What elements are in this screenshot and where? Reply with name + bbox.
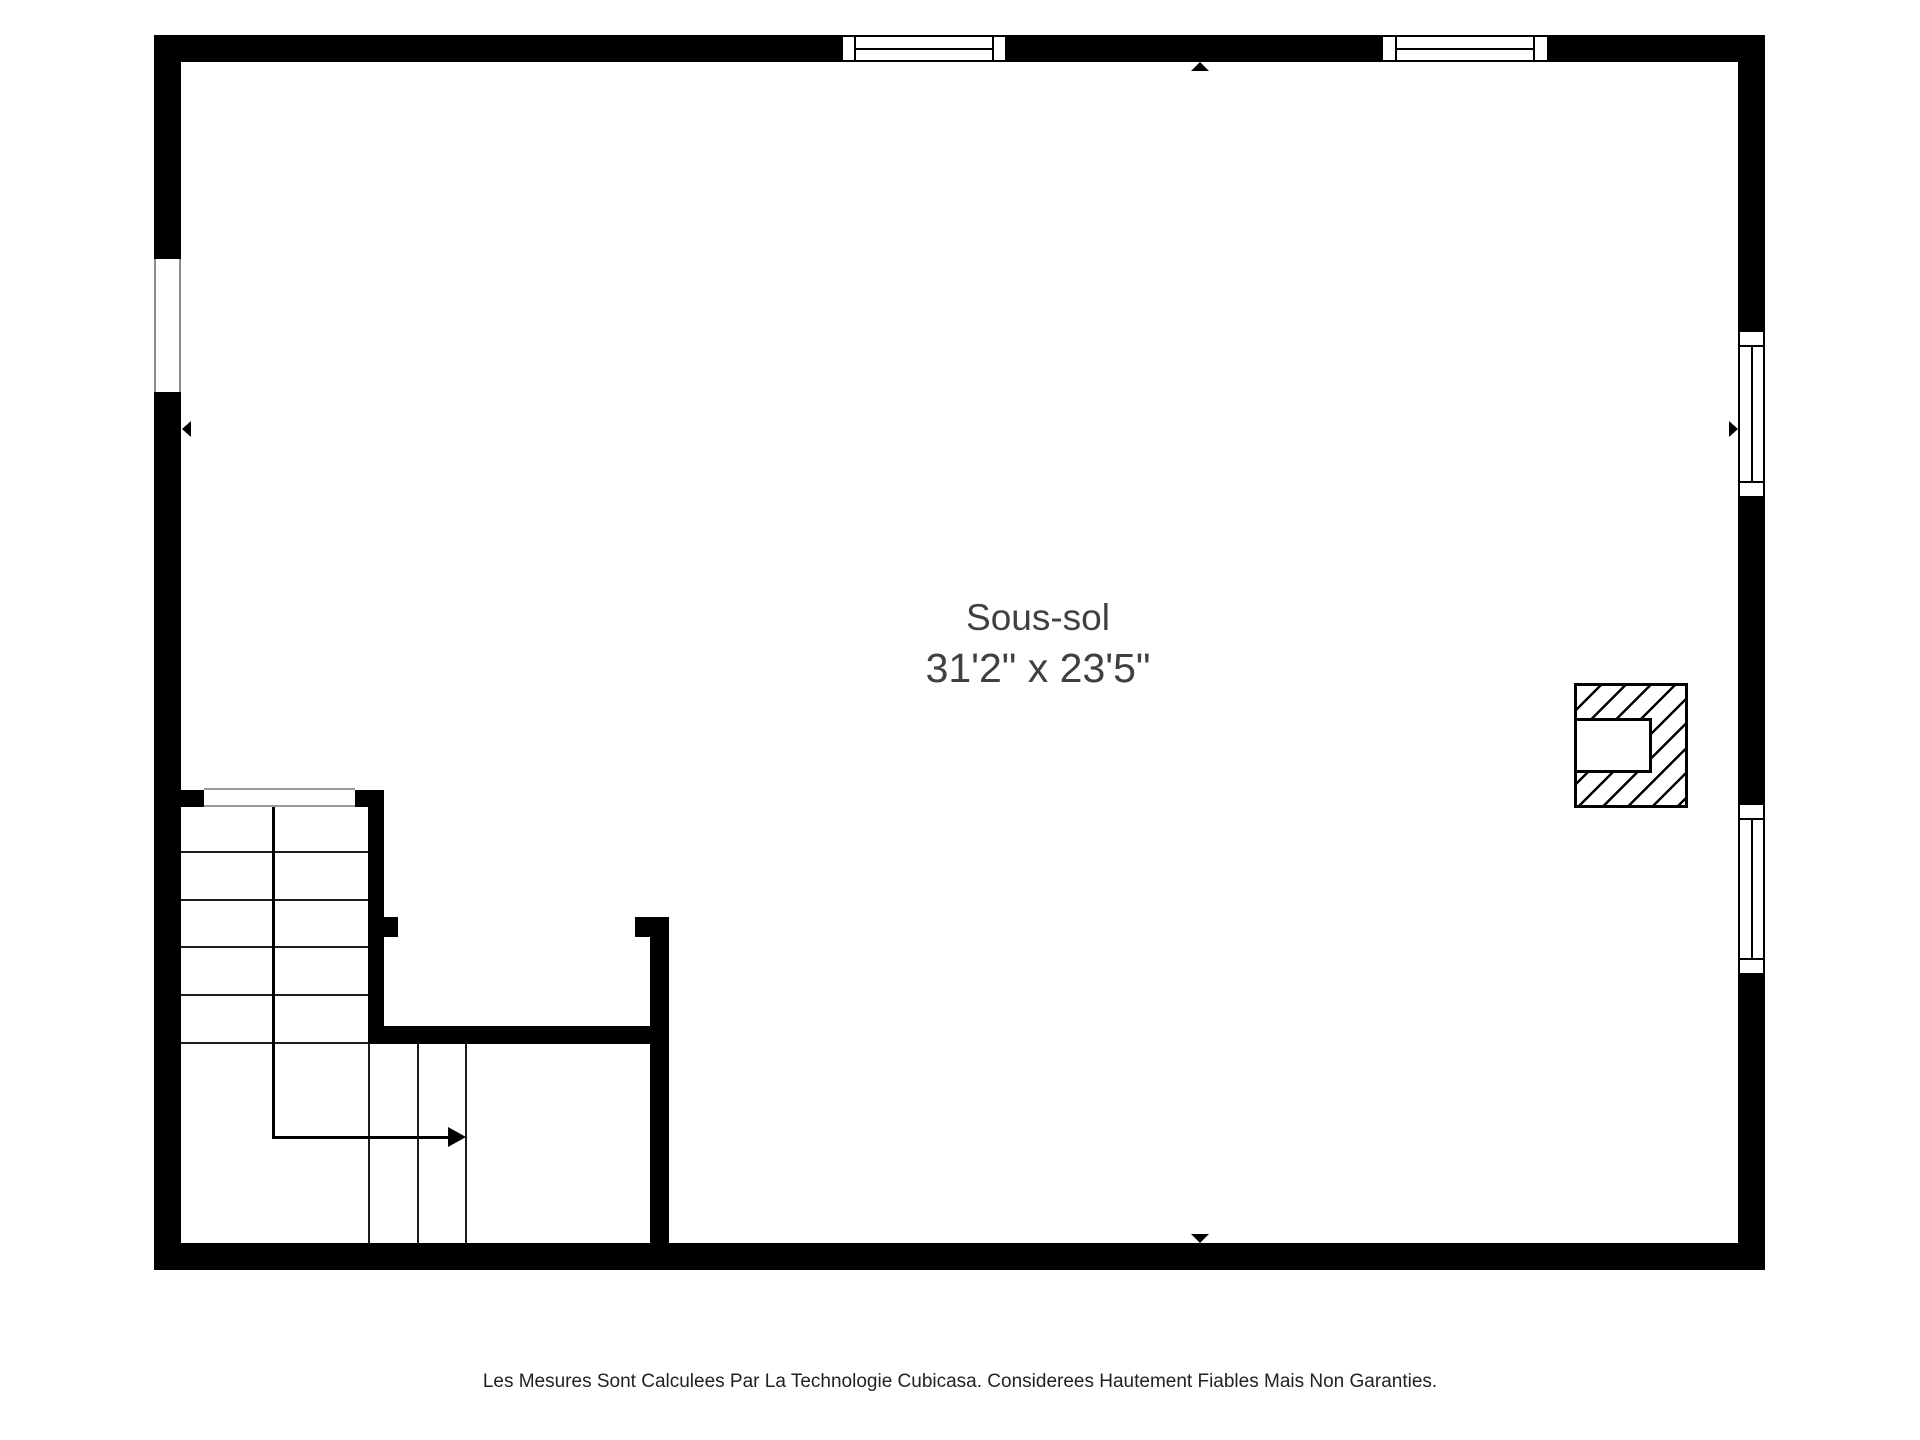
stair-wall-right	[368, 790, 384, 1027]
window-right-upper	[1738, 332, 1765, 496]
window-pane-line	[1751, 818, 1753, 960]
window-pane-line	[1751, 345, 1753, 483]
interior-wall-horizontal	[368, 1026, 669, 1044]
interior-wall-jamb-head	[635, 917, 650, 937]
stair-direction-arrowhead-icon	[448, 1127, 466, 1147]
wall-right	[1738, 35, 1765, 1270]
room-name-label: Sous-sol	[966, 597, 1110, 639]
window-top-right	[1383, 35, 1547, 62]
measurement-disclaimer: Les Mesures Sont Calculees Par La Techno…	[483, 1371, 1437, 1393]
stair-walk-line-vertical	[272, 807, 275, 1138]
interior-wall-vertical	[650, 917, 669, 1243]
entry-triangle-right-icon	[1729, 421, 1738, 437]
left-wall-opening	[154, 259, 181, 392]
entry-triangle-top-icon	[1191, 62, 1209, 71]
window-pane-line	[1395, 48, 1535, 50]
room-dimensions-label: 31'2" x 23'5"	[926, 645, 1151, 692]
entry-triangle-bottom-icon	[1191, 1234, 1209, 1243]
wall-bottom	[154, 1243, 1765, 1270]
stair-walk-line-horizontal	[272, 1136, 448, 1139]
entry-triangle-left-icon	[182, 421, 191, 437]
window-top-left	[843, 35, 1005, 62]
window-pane-line	[854, 48, 994, 50]
stair-wall-top-left-stub	[181, 790, 204, 807]
chimney-flue-box	[1574, 718, 1652, 773]
wall-left	[154, 35, 181, 1270]
stair-door-jamb-nub	[384, 917, 398, 937]
stair-tread	[368, 1043, 370, 1243]
stair-tread	[417, 1043, 419, 1243]
stair-door-threshold-line	[204, 805, 355, 807]
stair-door-threshold-line	[204, 788, 355, 790]
window-right-lower	[1738, 805, 1765, 973]
floor-plan-page: Sous-sol 31'2" x 23'5" Les Mesures Sont …	[0, 0, 1920, 1440]
